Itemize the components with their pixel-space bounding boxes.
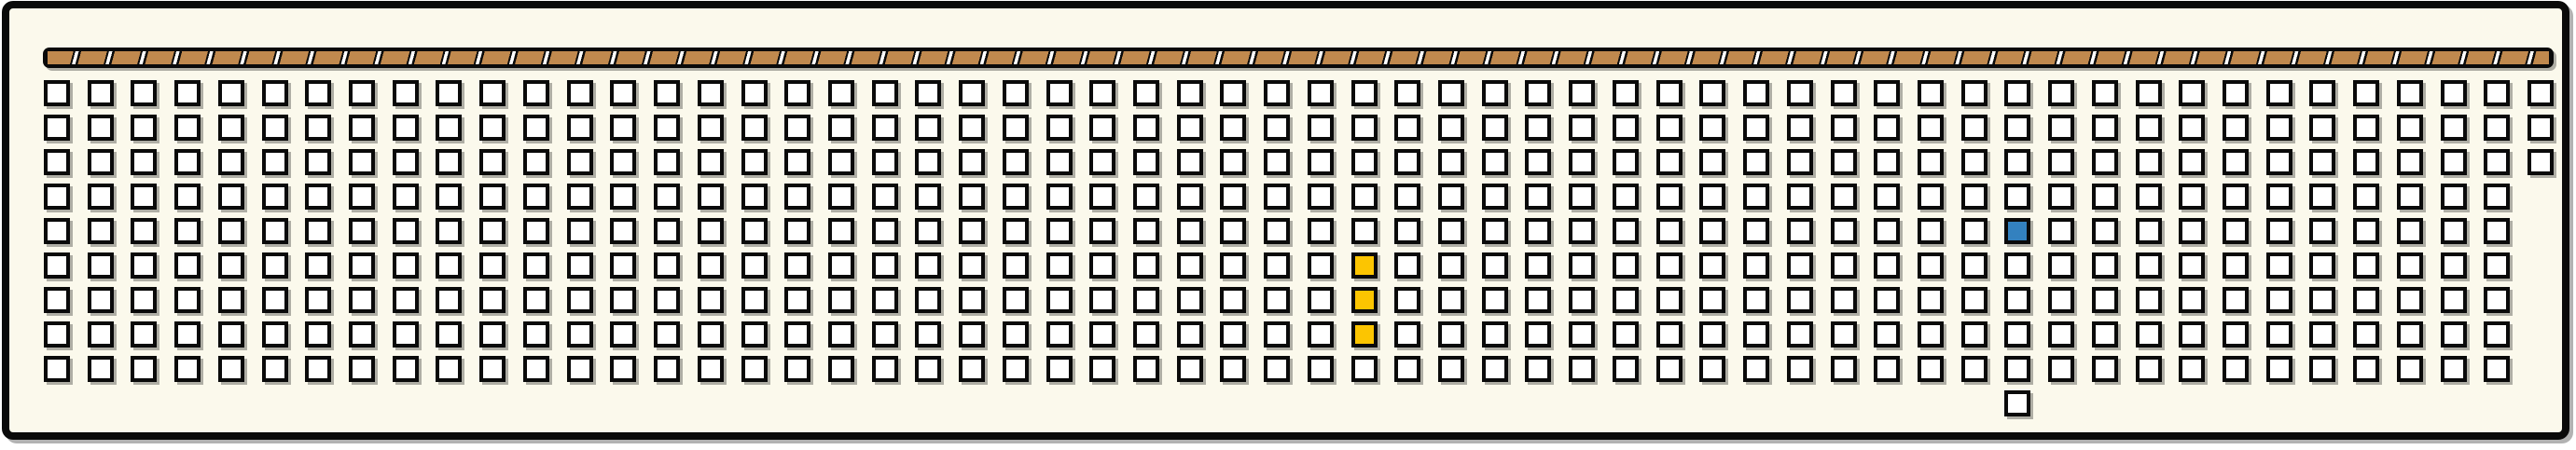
- grid-cell[interactable]: [2048, 252, 2074, 279]
- grid-cell[interactable]: [218, 115, 244, 141]
- grid-cell[interactable]: [2223, 80, 2249, 106]
- grid-cell[interactable]: [1961, 287, 1987, 313]
- grid-cell[interactable]: [828, 149, 854, 175]
- grid-cell[interactable]: [2048, 80, 2074, 106]
- grid-cell[interactable]: [1133, 287, 1159, 313]
- grid-cell[interactable]: [2397, 356, 2423, 382]
- grid-cell[interactable]: [436, 252, 462, 279]
- grid-cell[interactable]: [349, 252, 375, 279]
- grid-cell[interactable]: [2004, 287, 2030, 313]
- grid-cell[interactable]: [1918, 321, 1944, 348]
- grid-cell[interactable]: [2092, 184, 2118, 210]
- grid-cell[interactable]: [784, 218, 810, 244]
- grid-cell[interactable]: [1787, 218, 1813, 244]
- grid-cell[interactable]: [1438, 184, 1464, 210]
- grid-cell[interactable]: [959, 115, 985, 141]
- grid-cell[interactable]: [2136, 321, 2162, 348]
- grid-cell[interactable]: [1874, 184, 1900, 210]
- grid-cell[interactable]: [567, 218, 593, 244]
- grid-cell[interactable]: [349, 287, 375, 313]
- grid-cell[interactable]: [2092, 252, 2118, 279]
- grid-cell[interactable]: [523, 356, 549, 382]
- grid-cell[interactable]: [2441, 287, 2467, 313]
- grid-cell[interactable]: [1003, 321, 1029, 348]
- grid-cell[interactable]: [2484, 149, 2510, 175]
- grid-cell[interactable]: [349, 356, 375, 382]
- grid-cell[interactable]: [1482, 287, 1508, 313]
- grid-cell[interactable]: [1394, 218, 1420, 244]
- grid-cell[interactable]: [1918, 356, 1944, 382]
- grid-cell[interactable]: [1264, 218, 1290, 244]
- grid-cell[interactable]: [1918, 115, 1944, 141]
- grid-cell[interactable]: [2353, 80, 2379, 106]
- grid-cell[interactable]: [1613, 218, 1639, 244]
- grid-cell[interactable]: [436, 115, 462, 141]
- grid-cell[interactable]: [349, 218, 375, 244]
- grid-cell[interactable]: [1438, 149, 1464, 175]
- grid-cell[interactable]: [2397, 321, 2423, 348]
- grid-cell[interactable]: [1133, 149, 1159, 175]
- grid-cell[interactable]: [2266, 80, 2292, 106]
- grid-cell[interactable]: [305, 218, 331, 244]
- grid-cell[interactable]: [523, 252, 549, 279]
- grid-cell[interactable]: [1525, 80, 1551, 106]
- grid-cell[interactable]: [698, 287, 724, 313]
- grid-cell[interactable]: [349, 149, 375, 175]
- grid-cell[interactable]: [2092, 80, 2118, 106]
- grid-cell[interactable]: [1482, 218, 1508, 244]
- grid-cell[interactable]: [1220, 321, 1246, 348]
- grid-cell[interactable]: [1089, 356, 1115, 382]
- grid-cell[interactable]: [2136, 184, 2162, 210]
- grid-cell[interactable]: [393, 184, 419, 210]
- grid-cell[interactable]: [1089, 149, 1115, 175]
- grid-cell[interactable]: [828, 356, 854, 382]
- grid-cell[interactable]: [523, 287, 549, 313]
- grid-cell[interactable]: [1874, 321, 1900, 348]
- grid-cell[interactable]: [2223, 252, 2249, 279]
- grid-cell[interactable]: [2092, 149, 2118, 175]
- grid-cell[interactable]: [88, 321, 114, 348]
- grid-cell[interactable]: [131, 287, 157, 313]
- grid-cell[interactable]: [131, 218, 157, 244]
- grid-cell[interactable]: [88, 149, 114, 175]
- grid-cell[interactable]: [567, 184, 593, 210]
- grid-cell[interactable]: [393, 80, 419, 106]
- grid-cell[interactable]: [2309, 149, 2335, 175]
- grid-cell[interactable]: [88, 252, 114, 279]
- grid-cell[interactable]: [610, 287, 636, 313]
- grid-cell[interactable]: [1351, 149, 1378, 175]
- grid-cell[interactable]: [915, 356, 941, 382]
- grid-cell[interactable]: [1003, 356, 1029, 382]
- grid-cell[interactable]: [1177, 184, 1203, 210]
- grid-cell[interactable]: [262, 287, 288, 313]
- grid-cell[interactable]: [915, 321, 941, 348]
- grid-cell[interactable]: [2223, 184, 2249, 210]
- grid-cell[interactable]: [2266, 356, 2292, 382]
- grid-cell[interactable]: [567, 287, 593, 313]
- grid-cell[interactable]: [698, 252, 724, 279]
- grid-cell[interactable]: [174, 115, 201, 141]
- grid-cell[interactable]: [1961, 321, 1987, 348]
- grid-cell[interactable]: [698, 80, 724, 106]
- grid-cell[interactable]: [1351, 184, 1378, 210]
- grid-cell[interactable]: [1569, 252, 1595, 279]
- grid-cell[interactable]: [1482, 184, 1508, 210]
- grid-cell[interactable]: [174, 252, 201, 279]
- grid-cell[interactable]: [436, 321, 462, 348]
- grid-cell[interactable]: [2484, 356, 2510, 382]
- grid-cell[interactable]: [218, 252, 244, 279]
- grid-cell[interactable]: [1743, 287, 1769, 313]
- grid-cell[interactable]: [1656, 252, 1683, 279]
- grid-cell[interactable]: [44, 252, 70, 279]
- grid-cell[interactable]: [2092, 218, 2118, 244]
- grid-cell[interactable]: [741, 218, 768, 244]
- grid-cell[interactable]: [2484, 252, 2510, 279]
- grid-cell[interactable]: [1394, 80, 1420, 106]
- grid-cell[interactable]: [1046, 218, 1073, 244]
- grid-cell[interactable]: [479, 218, 506, 244]
- grid-cell[interactable]: [959, 80, 985, 106]
- grid-cell[interactable]: [2484, 184, 2510, 210]
- grid-cell[interactable]: [2441, 184, 2467, 210]
- grid-cell[interactable]: [1308, 252, 1334, 279]
- grid-cell[interactable]: [1089, 321, 1115, 348]
- grid-cell[interactable]: [1264, 149, 1290, 175]
- grid-cell[interactable]: [872, 115, 898, 141]
- grid-cell[interactable]: [2309, 115, 2335, 141]
- grid-cell[interactable]: [2179, 149, 2205, 175]
- grid-cell[interactable]: [915, 149, 941, 175]
- grid-cell[interactable]: [44, 149, 70, 175]
- grid-cell[interactable]: [1394, 252, 1420, 279]
- grid-cell[interactable]: [1787, 321, 1813, 348]
- grid-cell[interactable]: [262, 356, 288, 382]
- grid-cell[interactable]: [2223, 356, 2249, 382]
- grid-cell[interactable]: [828, 287, 854, 313]
- grid-cell[interactable]: [2092, 321, 2118, 348]
- grid-cell[interactable]: [872, 149, 898, 175]
- grid-cell[interactable]: [349, 321, 375, 348]
- grid-cell[interactable]: [610, 115, 636, 141]
- grid-cell-yellow[interactable]: [1351, 287, 1378, 313]
- grid-cell[interactable]: [654, 321, 680, 348]
- grid-cell[interactable]: [2048, 115, 2074, 141]
- grid-cell[interactable]: [1743, 115, 1769, 141]
- grid-cell[interactable]: [784, 115, 810, 141]
- grid-cell[interactable]: [305, 115, 331, 141]
- grid-cell[interactable]: [2441, 218, 2467, 244]
- grid-cell[interactable]: [610, 149, 636, 175]
- grid-cell[interactable]: [1133, 184, 1159, 210]
- grid-cell[interactable]: [1438, 287, 1464, 313]
- grid-cell[interactable]: [2353, 321, 2379, 348]
- grid-cell[interactable]: [2309, 321, 2335, 348]
- grid-cell[interactable]: [2441, 80, 2467, 106]
- grid-cell[interactable]: [88, 184, 114, 210]
- grid-cell[interactable]: [2397, 287, 2423, 313]
- grid-cell[interactable]: [2397, 218, 2423, 244]
- grid-cell[interactable]: [567, 115, 593, 141]
- grid-cell[interactable]: [1656, 287, 1683, 313]
- grid-cell[interactable]: [1046, 184, 1073, 210]
- grid-cell[interactable]: [2353, 356, 2379, 382]
- grid-cell[interactable]: [2048, 184, 2074, 210]
- grid-cell[interactable]: [349, 80, 375, 106]
- grid-cell[interactable]: [610, 321, 636, 348]
- grid-cell[interactable]: [610, 184, 636, 210]
- grid-cell[interactable]: [2484, 80, 2510, 106]
- grid-cell[interactable]: [1525, 252, 1551, 279]
- grid-cell[interactable]: [959, 149, 985, 175]
- grid-cell[interactable]: [959, 184, 985, 210]
- grid-cell[interactable]: [1438, 218, 1464, 244]
- grid-cell[interactable]: [1656, 115, 1683, 141]
- grid-cell[interactable]: [1438, 252, 1464, 279]
- grid-cell[interactable]: [1438, 80, 1464, 106]
- grid-cell[interactable]: [2266, 218, 2292, 244]
- grid-cell[interactable]: [2528, 149, 2554, 175]
- grid-cell[interactable]: [959, 252, 985, 279]
- grid-cell[interactable]: [1177, 287, 1203, 313]
- grid-cell[interactable]: [2179, 218, 2205, 244]
- grid-cell[interactable]: [2441, 115, 2467, 141]
- grid-cell[interactable]: [1874, 218, 1900, 244]
- grid-cell[interactable]: [1656, 356, 1683, 382]
- grid-cell[interactable]: [1308, 149, 1334, 175]
- grid-cell[interactable]: [44, 80, 70, 106]
- grid-cell[interactable]: [1003, 184, 1029, 210]
- grid-cell[interactable]: [2397, 252, 2423, 279]
- grid-cell[interactable]: [1831, 287, 1857, 313]
- grid-cell[interactable]: [915, 218, 941, 244]
- grid-cell[interactable]: [218, 321, 244, 348]
- grid-cell[interactable]: [262, 149, 288, 175]
- grid-cell[interactable]: [2353, 184, 2379, 210]
- grid-cell[interactable]: [1699, 115, 1725, 141]
- grid-cell-yellow[interactable]: [1351, 252, 1378, 279]
- grid-cell[interactable]: [1569, 356, 1595, 382]
- grid-cell[interactable]: [2179, 184, 2205, 210]
- grid-cell[interactable]: [741, 149, 768, 175]
- grid-cell[interactable]: [1177, 149, 1203, 175]
- grid-cell[interactable]: [1525, 321, 1551, 348]
- grid-cell[interactable]: [436, 80, 462, 106]
- grid-cell[interactable]: [349, 184, 375, 210]
- grid-cell[interactable]: [1525, 356, 1551, 382]
- grid-cell[interactable]: [698, 218, 724, 244]
- grid-cell[interactable]: [1699, 252, 1725, 279]
- grid-cell[interactable]: [1046, 115, 1073, 141]
- grid-cell[interactable]: [479, 287, 506, 313]
- grid-cell[interactable]: [741, 115, 768, 141]
- grid-cell[interactable]: [1831, 218, 1857, 244]
- grid-cell[interactable]: [567, 356, 593, 382]
- grid-cell[interactable]: [1961, 80, 1987, 106]
- grid-cell[interactable]: [2309, 184, 2335, 210]
- grid-cell[interactable]: [2309, 80, 2335, 106]
- grid-cell[interactable]: [1918, 80, 1944, 106]
- grid-cell[interactable]: [654, 287, 680, 313]
- grid-cell[interactable]: [784, 321, 810, 348]
- grid-cell[interactable]: [174, 149, 201, 175]
- grid-cell[interactable]: [1133, 252, 1159, 279]
- grid-cell[interactable]: [1264, 184, 1290, 210]
- grid-cell[interactable]: [2004, 321, 2030, 348]
- grid-cell[interactable]: [915, 184, 941, 210]
- grid-cell[interactable]: [2223, 115, 2249, 141]
- grid-cell[interactable]: [436, 287, 462, 313]
- grid-cell[interactable]: [1394, 149, 1420, 175]
- grid-cell[interactable]: [2179, 321, 2205, 348]
- grid-cell[interactable]: [784, 149, 810, 175]
- grid-cell[interactable]: [1831, 356, 1857, 382]
- grid-cell[interactable]: [828, 80, 854, 106]
- grid-cell[interactable]: [218, 80, 244, 106]
- grid-cell[interactable]: [1787, 80, 1813, 106]
- grid-cell[interactable]: [262, 184, 288, 210]
- grid-cell[interactable]: [2004, 184, 2030, 210]
- grid-cell[interactable]: [1089, 115, 1115, 141]
- grid-cell[interactable]: [2353, 252, 2379, 279]
- grid-cell[interactable]: [2048, 321, 2074, 348]
- grid-cell[interactable]: [698, 115, 724, 141]
- grid-cell[interactable]: [262, 321, 288, 348]
- grid-cell[interactable]: [1831, 184, 1857, 210]
- grid-cell[interactable]: [2441, 321, 2467, 348]
- grid-cell[interactable]: [88, 287, 114, 313]
- grid-cell[interactable]: [654, 149, 680, 175]
- grid-cell[interactable]: [1438, 356, 1464, 382]
- grid-cell[interactable]: [393, 252, 419, 279]
- grid-cell[interactable]: [654, 80, 680, 106]
- grid-cell[interactable]: [1308, 287, 1334, 313]
- grid-cell[interactable]: [1089, 252, 1115, 279]
- grid-cell[interactable]: [1613, 321, 1639, 348]
- grid-cell[interactable]: [1961, 115, 1987, 141]
- grid-cell[interactable]: [828, 252, 854, 279]
- grid-cell[interactable]: [741, 287, 768, 313]
- grid-cell[interactable]: [741, 80, 768, 106]
- grid-cell[interactable]: [1220, 184, 1246, 210]
- grid-cell[interactable]: [523, 149, 549, 175]
- grid-cell[interactable]: [1264, 115, 1290, 141]
- grid-cell[interactable]: [1482, 149, 1508, 175]
- grid-cell[interactable]: [2004, 356, 2030, 382]
- grid-cell[interactable]: [698, 149, 724, 175]
- grid-cell[interactable]: [1569, 184, 1595, 210]
- grid-cell[interactable]: [479, 356, 506, 382]
- grid-cell[interactable]: [784, 184, 810, 210]
- grid-cell[interactable]: [2353, 149, 2379, 175]
- grid-cell[interactable]: [44, 356, 70, 382]
- grid-cell[interactable]: [1264, 287, 1290, 313]
- grid-cell[interactable]: [1438, 321, 1464, 348]
- grid-cell[interactable]: [654, 356, 680, 382]
- grid-cell[interactable]: [2353, 115, 2379, 141]
- grid-cell[interactable]: [654, 115, 680, 141]
- grid-cell[interactable]: [2223, 321, 2249, 348]
- grid-cell[interactable]: [872, 321, 898, 348]
- grid-cell[interactable]: [174, 356, 201, 382]
- grid-cell[interactable]: [2004, 149, 2030, 175]
- grid-cell[interactable]: [2266, 115, 2292, 141]
- grid-cell[interactable]: [1308, 184, 1334, 210]
- grid-cell[interactable]: [44, 321, 70, 348]
- grid-cell[interactable]: [2048, 149, 2074, 175]
- grid-cell[interactable]: [1394, 356, 1420, 382]
- grid-cell[interactable]: [1308, 356, 1334, 382]
- grid-cell[interactable]: [741, 321, 768, 348]
- grid-cell[interactable]: [1046, 80, 1073, 106]
- grid-cell[interactable]: [2266, 184, 2292, 210]
- grid-cell[interactable]: [1613, 149, 1639, 175]
- grid-cell[interactable]: [959, 321, 985, 348]
- grid-cell[interactable]: [610, 356, 636, 382]
- grid-cell[interactable]: [1482, 321, 1508, 348]
- grid-cell[interactable]: [610, 252, 636, 279]
- grid-cell[interactable]: [174, 80, 201, 106]
- grid-cell[interactable]: [1046, 287, 1073, 313]
- grid-cell[interactable]: [1220, 149, 1246, 175]
- grid-cell[interactable]: [1264, 356, 1290, 382]
- grid-cell[interactable]: [2179, 356, 2205, 382]
- grid-cell[interactable]: [2136, 356, 2162, 382]
- grid-cell[interactable]: [174, 184, 201, 210]
- grid-cell[interactable]: [262, 252, 288, 279]
- grid-cell[interactable]: [305, 184, 331, 210]
- grid-cell[interactable]: [1874, 149, 1900, 175]
- grid-cell[interactable]: [131, 80, 157, 106]
- grid-cell[interactable]: [1525, 184, 1551, 210]
- grid-cell[interactable]: [784, 80, 810, 106]
- grid-cell[interactable]: [2004, 252, 2030, 279]
- grid-cell[interactable]: [1177, 321, 1203, 348]
- grid-cell[interactable]: [1613, 287, 1639, 313]
- grid-cell[interactable]: [393, 149, 419, 175]
- grid-cell[interactable]: [567, 252, 593, 279]
- grid-cell[interactable]: [262, 115, 288, 141]
- grid-cell[interactable]: [1874, 356, 1900, 382]
- grid-cell[interactable]: [1699, 321, 1725, 348]
- grid-cell[interactable]: [1918, 149, 1944, 175]
- grid-cell[interactable]: [915, 252, 941, 279]
- grid-cell[interactable]: [1831, 149, 1857, 175]
- grid-cell[interactable]: [1918, 252, 1944, 279]
- grid-cell[interactable]: [1351, 356, 1378, 382]
- grid-cell[interactable]: [305, 287, 331, 313]
- grid-cell[interactable]: [1133, 80, 1159, 106]
- grid-cell[interactable]: [1133, 115, 1159, 141]
- grid-cell[interactable]: [1220, 115, 1246, 141]
- grid-cell[interactable]: [1699, 218, 1725, 244]
- grid-cell[interactable]: [1743, 356, 1769, 382]
- grid-cell[interactable]: [784, 356, 810, 382]
- grid-cell[interactable]: [262, 218, 288, 244]
- grid-cell[interactable]: [1351, 80, 1378, 106]
- grid-cell[interactable]: [1525, 115, 1551, 141]
- grid-cell[interactable]: [218, 287, 244, 313]
- grid-cell[interactable]: [44, 218, 70, 244]
- grid-cell[interactable]: [1482, 252, 1508, 279]
- grid-cell[interactable]: [1656, 149, 1683, 175]
- grid-cell[interactable]: [1133, 321, 1159, 348]
- grid-cell[interactable]: [2092, 115, 2118, 141]
- grid-cell[interactable]: [1874, 287, 1900, 313]
- grid-cell[interactable]: [1394, 115, 1420, 141]
